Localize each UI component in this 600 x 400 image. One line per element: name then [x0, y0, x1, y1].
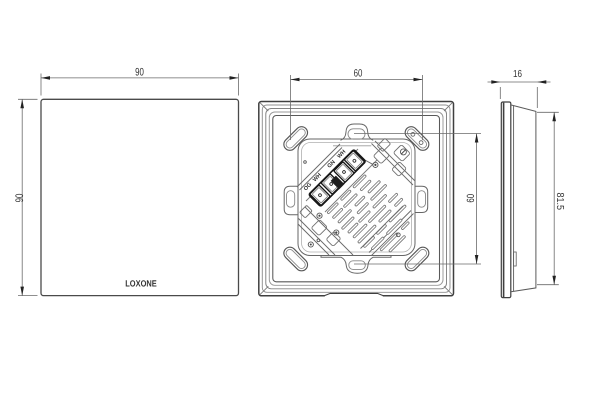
svg-text:90: 90 [135, 67, 144, 79]
svg-text:90: 90 [14, 194, 26, 203]
svg-text:60: 60 [354, 67, 363, 79]
svg-text:60: 60 [465, 194, 477, 203]
svg-text:81.5: 81.5 [554, 192, 565, 210]
svg-text:LOXONE: LOXONE [125, 278, 157, 288]
svg-text:16: 16 [513, 69, 522, 80]
